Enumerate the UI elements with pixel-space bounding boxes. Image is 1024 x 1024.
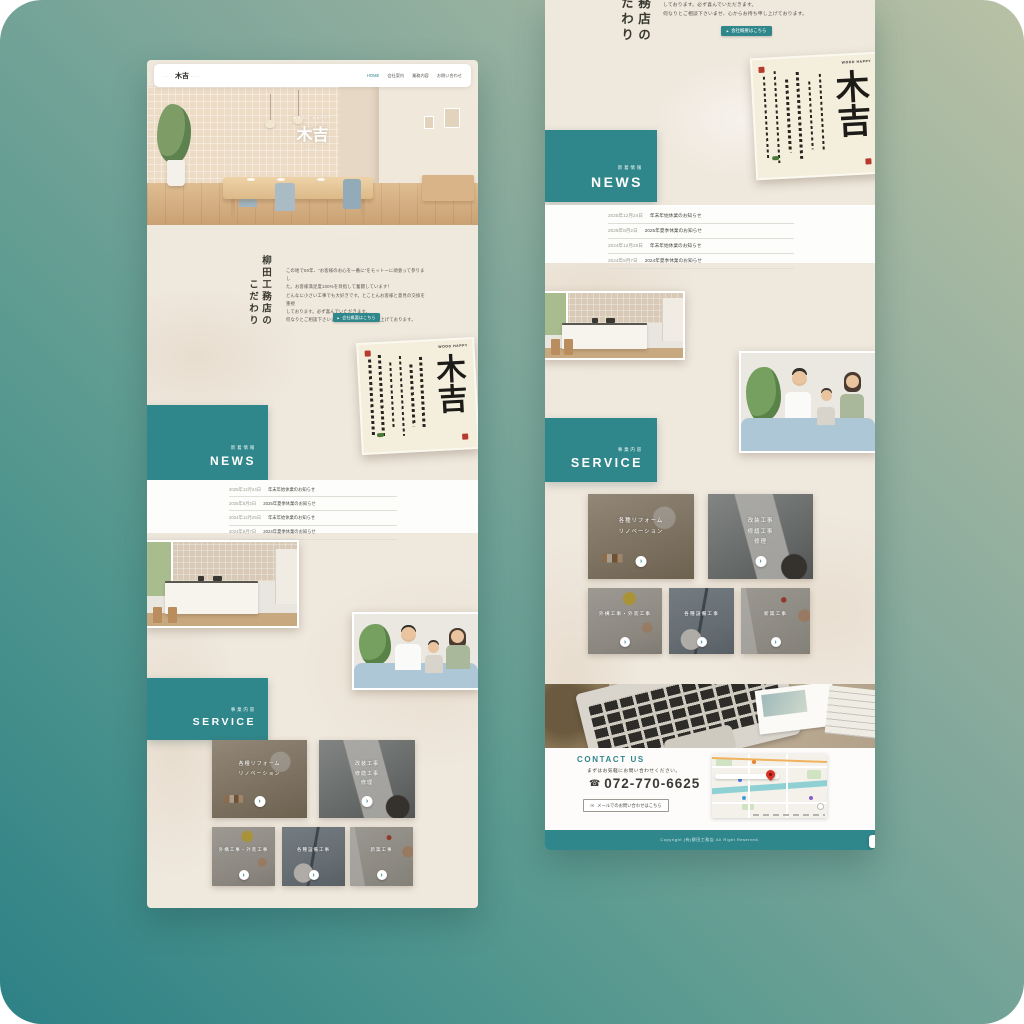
news-item[interactable]: 2024年12月25日年末年始休業のお知らせ: [608, 239, 794, 254]
concept-line: た。お客様満足度100%を目指して奮闘しています！: [286, 283, 428, 291]
concept-line: どんなに小さい工事でも大好きです。とことんお客様と意見の交換を重視: [286, 292, 428, 308]
kitchen-photo: [147, 540, 299, 628]
news-date: 2024年8月7日: [608, 258, 638, 264]
concept-title: 柳田工務店のこだわり: [245, 247, 271, 327]
hero-planter: [167, 160, 185, 186]
mail-contact-button[interactable]: ✉ メールでのお問い合わせはこちら: [583, 799, 669, 812]
map-road: [712, 766, 827, 768]
news-band: 2025年12月24日年末年始休業のお知らせ 2025年8月2日2025年夏季休…: [147, 480, 478, 533]
service-card-repair[interactable]: 改装工事修繕工事修理 ›: [708, 494, 813, 579]
news-section-header: 新着情報 NEWS: [545, 130, 657, 202]
calligraphy-column: [763, 76, 770, 159]
map-control-icon[interactable]: [817, 803, 824, 810]
contact-section: CONTACT US まずはお気軽にお問い合わせください。 ☎ 072-770-…: [545, 748, 875, 830]
calligraphy-column: [818, 73, 824, 151]
hero-logo: WOOD HAPPY 木吉 ••••: [293, 116, 332, 151]
sideboard: [422, 175, 474, 201]
hero-logo-text: 木吉: [293, 121, 332, 145]
table-plate: [317, 178, 325, 181]
arrow-circle-icon: ›: [239, 870, 249, 880]
hero-logo-dots: ••••: [293, 146, 332, 151]
news-date: 2025年12月24日: [608, 213, 643, 219]
arrow-right-icon: ▶: [337, 316, 339, 320]
mother-figure: [846, 375, 859, 388]
news-list: 2025年12月24日年末年始休業のお知らせ 2025年8月2日2025年夏季休…: [229, 483, 397, 540]
hero-photo: WOOD HAPPY 木吉 ••••: [147, 86, 478, 225]
kitchen-island: [165, 581, 258, 615]
arrow-circle-icon: ›: [309, 870, 319, 880]
concept-line: 何なりとご相談下さいませ、心からお待ち申し上げております。: [663, 11, 813, 20]
news-item[interactable]: 2025年8月2日2025年夏季休業のお知らせ: [229, 497, 397, 511]
kitchen-kettle: [592, 318, 598, 323]
calligraphy-column: [419, 357, 425, 428]
mother-figure: [451, 630, 464, 643]
news-title: 年末年始休業のお知らせ: [650, 243, 701, 249]
contact-lead: まずはお気軽にお問い合わせください。: [587, 767, 681, 774]
mother-figure: [840, 394, 864, 418]
kitchen-photo: [545, 291, 685, 360]
service-card-reform[interactable]: 各種リフォームリノベーション ›: [212, 740, 307, 818]
map-river: [712, 779, 827, 795]
news-title: 2024年夏季休業のお知らせ: [263, 529, 315, 535]
news-date: 2024年12月25日: [229, 515, 261, 521]
news-date: 2025年8月2日: [229, 501, 256, 507]
news-date: 2024年12月25日: [608, 243, 643, 249]
nav-home[interactable]: HOME: [367, 73, 380, 78]
table-leg: [231, 197, 235, 219]
calligraphy-column: [808, 81, 814, 149]
kitchen-pot: [606, 318, 615, 323]
news-title: 年末年始休業のお知らせ: [650, 213, 701, 219]
site-logo[interactable]: ····· 木吉 ·····: [163, 71, 201, 81]
concept-title-partial: 柳田工務店のこだわり: [617, 0, 651, 44]
table-leg: [361, 197, 365, 219]
footer: Copyright (有)柳田工務店 All Right Reserved.: [545, 830, 875, 850]
logo-text: 木吉: [175, 71, 189, 81]
dining-chair: [343, 179, 361, 209]
service-label-en: SERVICE: [193, 716, 256, 728]
news-item[interactable]: 2024年12月25日年末年始休業のお知らせ: [229, 511, 397, 525]
photo-print: [761, 690, 807, 717]
news-title: 2025年夏季休業のお知らせ: [645, 228, 702, 234]
service-card-equipment[interactable]: 各種設備工事 ›: [669, 588, 734, 654]
nav-contact[interactable]: お問い合わせ: [437, 73, 462, 79]
calligraphy-main-text: 木吉: [431, 353, 464, 414]
service-label-en: SERVICE: [571, 456, 643, 470]
map-poi-icon: [809, 796, 813, 800]
company-profile-button[interactable]: ▶ 会社概要はこちら: [333, 313, 380, 322]
news-band: 2025年12月24日年末年始休業のお知らせ 2025年8月2日2025年夏季休…: [545, 205, 875, 263]
wall-frame: [424, 116, 434, 129]
kitchen-chair: [551, 339, 560, 355]
google-map[interactable]: [712, 754, 827, 818]
kitchen-kettle: [198, 576, 204, 581]
table-plate: [247, 178, 255, 181]
calligraphy-artwork: WOOD HAPPY 木吉: [356, 337, 478, 455]
child-figure: [817, 407, 835, 425]
news-section-header: 新着情報 NEWS: [147, 405, 268, 480]
child-figure: [425, 655, 443, 673]
gradient-background: WOOD HAPPY 木吉 •••• ····· 木吉 ····· HOME 会…: [0, 0, 1024, 1024]
pendant-lamp: [265, 120, 275, 128]
map-road: [712, 802, 827, 804]
service-card-exterior[interactable]: 外構工事・外装工事 ›: [588, 588, 662, 654]
news-list: 2025年12月24日年末年始休業のお知らせ 2025年8月2日2025年夏季休…: [608, 209, 794, 269]
calligraphy-column: [399, 356, 406, 436]
copyright-text: Copyright (有)柳田工務店 All Right Reserved.: [660, 837, 759, 843]
calligraphy-subtitle: WOOD HAPPY: [438, 344, 468, 350]
arrow-circle-icon: ›: [377, 870, 387, 880]
calligraphy-subtitle: WOOD HAPPY: [842, 59, 872, 65]
concept-body-tail: しております。必ず喜んでいただきます。 何なりとご相談下さいませ、心からお待ち申…: [663, 2, 813, 19]
contact-heading: CONTACT US: [577, 755, 645, 764]
service-label-jp: 事業内容: [618, 447, 643, 453]
news-label-en: NEWS: [210, 454, 256, 468]
phone-icon: ☎: [589, 778, 600, 789]
kitchen-fridge: [275, 549, 298, 604]
service-card-exterior[interactable]: 外構工事・外装工事 ›: [212, 827, 275, 886]
map-poi-icon: [742, 796, 746, 800]
calligraphy-column: [409, 364, 415, 427]
red-seal-stamp: [865, 158, 871, 164]
kitchen-fridge: [662, 298, 683, 341]
service-card-newbuild[interactable]: 新築工事 ›: [350, 827, 413, 886]
lamp-cord: [270, 94, 271, 120]
service-card-repair[interactable]: 改装工事修繕工事修理 ›: [319, 740, 415, 818]
family-photo: [739, 351, 875, 453]
father-figure: [792, 371, 807, 386]
phone-number[interactable]: ☎ 072-770-6625: [589, 776, 700, 791]
green-accent: [377, 433, 384, 437]
map-road: [748, 754, 750, 818]
arrow-right-icon: ▶: [727, 29, 729, 33]
kitchen-chair: [564, 339, 573, 355]
red-seal-stamp: [364, 351, 370, 357]
family-plant: [746, 367, 781, 422]
news-item[interactable]: 2025年8月2日2025年夏季休業のお知らせ: [608, 224, 794, 239]
map-park: [807, 770, 821, 779]
arrow-circle-icon: ›: [697, 637, 707, 647]
service-card-equipment[interactable]: 各種設備工事 ›: [282, 827, 345, 886]
map-attribution: [753, 814, 825, 816]
mother-figure: [446, 645, 470, 669]
kitchen-chair: [153, 607, 162, 623]
hero-logo-tagline: WOOD HAPPY: [293, 116, 332, 120]
kitchen-pot: [213, 576, 222, 581]
website-screenshot-top: WOOD HAPPY 木吉 •••• ····· 木吉 ····· HOME 会…: [147, 60, 478, 908]
arrow-circle-icon: ›: [254, 796, 265, 807]
arrow-circle-icon: ›: [636, 556, 647, 567]
family-plant: [359, 624, 391, 665]
news-item[interactable]: 2025年12月24日年末年始休業のお知らせ: [229, 483, 397, 497]
news-title: 年末年始休業のお知らせ: [268, 487, 315, 493]
logo-deco-dots: ·····: [163, 74, 173, 78]
news-item[interactable]: 2025年12月24日年末年始休業のお知らせ: [608, 209, 794, 224]
concept-line: しております。必ず喜んでいただきます。: [663, 2, 813, 11]
map-poi-icon: [752, 760, 756, 764]
kitchen-chair: [168, 607, 177, 623]
service-section-header: 事業内容 SERVICE: [545, 418, 657, 482]
news-date: 2024年8月7日: [229, 529, 256, 535]
family-photo: [352, 612, 478, 690]
news-label-jp: 新着情報: [231, 445, 256, 451]
calligraphy-main-text: 木吉: [830, 69, 868, 139]
company-profile-label: 会社概要はこちら: [342, 315, 376, 321]
calligraphy-column: [378, 355, 385, 439]
news-date: 2025年12月24日: [229, 487, 261, 493]
arrow-circle-icon: ›: [771, 637, 781, 647]
news-item[interactable]: 2024年8月7日2024年夏季休業のお知らせ: [229, 526, 397, 540]
news-title: 2025年夏季休業のお知らせ: [263, 501, 315, 507]
nav-service[interactable]: 業務内容: [412, 73, 429, 79]
mail-contact-label: メールでのお問い合わせはこちら: [597, 803, 661, 809]
calligraphy-column: [389, 363, 395, 430]
calligraphy-column: [368, 360, 374, 436]
calligraphy-column: [796, 72, 803, 159]
dining-chair: [275, 183, 295, 211]
red-seal-stamp: [759, 67, 765, 73]
concept-line: この地で50年、“お客様のお心を一番に”をモットーに頑張って参りまし: [286, 267, 428, 283]
table-plate: [277, 178, 285, 181]
calligraphy-artwork: WOOD HAPPY 木吉: [750, 52, 875, 181]
phone-number-text: 072-770-6625: [604, 776, 700, 791]
service-card-reform[interactable]: 各種リフォームリノベーション ›: [588, 494, 694, 579]
desk-blueprint: [825, 685, 875, 738]
family-couch: [741, 418, 875, 451]
father-figure: [785, 392, 811, 418]
back-to-top-button[interactable]: [869, 835, 875, 848]
company-profile-label: 会社概要はこちら: [731, 28, 766, 34]
service-label-jp: 事業内容: [231, 707, 256, 713]
arrow-circle-icon: ›: [362, 796, 373, 807]
wall-frame: [444, 108, 460, 128]
mail-icon: ✉: [590, 803, 594, 809]
arrow-circle-icon: ›: [755, 556, 766, 567]
service-section-header: 事業内容 SERVICE: [147, 678, 268, 740]
news-label-en: NEWS: [591, 174, 643, 190]
news-title: 2024年夏季休業のお知らせ: [645, 258, 702, 264]
calligraphy-column: [774, 71, 781, 163]
calligraphy-column: [785, 80, 791, 153]
site-header: ····· 木吉 ····· HOME 会社案内 業務内容 お問い合わせ: [154, 64, 471, 87]
desk-laptop-photo: [545, 684, 875, 748]
service-card-newbuild[interactable]: 新築工事 ›: [741, 588, 810, 654]
map-road: [786, 754, 788, 818]
arrow-circle-icon: ›: [620, 637, 630, 647]
website-screenshot-bottom: 柳田工務店のこだわり しております。必ず喜んでいただきます。 何なりとご相談下さ…: [545, 0, 875, 850]
kitchen-island: [562, 323, 648, 349]
company-profile-button[interactable]: ▶ 会社概要はこちら: [721, 26, 772, 36]
lamp-cord: [298, 90, 299, 116]
nav-company[interactable]: 会社案内: [387, 73, 404, 79]
news-title: 年末年始休業のお知らせ: [268, 515, 315, 521]
news-item[interactable]: 2024年8月7日2024年夏季休業のお知らせ: [608, 254, 794, 269]
main-nav: HOME 会社案内 業務内容 お問い合わせ: [359, 73, 462, 79]
father-figure: [395, 644, 421, 670]
news-date: 2025年8月2日: [608, 228, 638, 234]
red-seal-stamp: [462, 434, 468, 440]
news-label-jp: 新着情報: [618, 165, 643, 171]
logo-deco-dots: ·····: [191, 74, 201, 78]
